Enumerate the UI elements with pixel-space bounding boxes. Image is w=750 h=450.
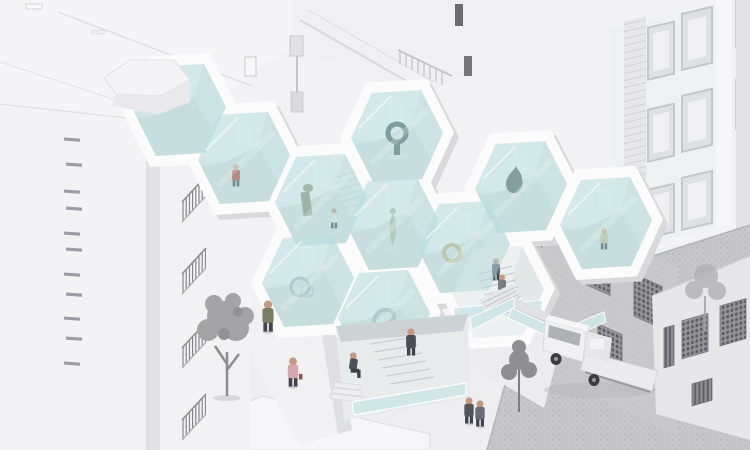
dark-window-slit [464, 56, 472, 76]
left-slab-building [0, 104, 160, 450]
roof-vent [26, 4, 42, 9]
handbag [299, 374, 302, 380]
dark-window-slit [455, 4, 463, 26]
rendering-stage [0, 0, 750, 450]
wall-window [245, 57, 256, 76]
hanging-sign [291, 92, 303, 112]
hanging-sign [290, 36, 303, 56]
entry-steps [330, 382, 364, 403]
rendering-canvas [0, 0, 750, 450]
roof-vent [92, 30, 104, 34]
